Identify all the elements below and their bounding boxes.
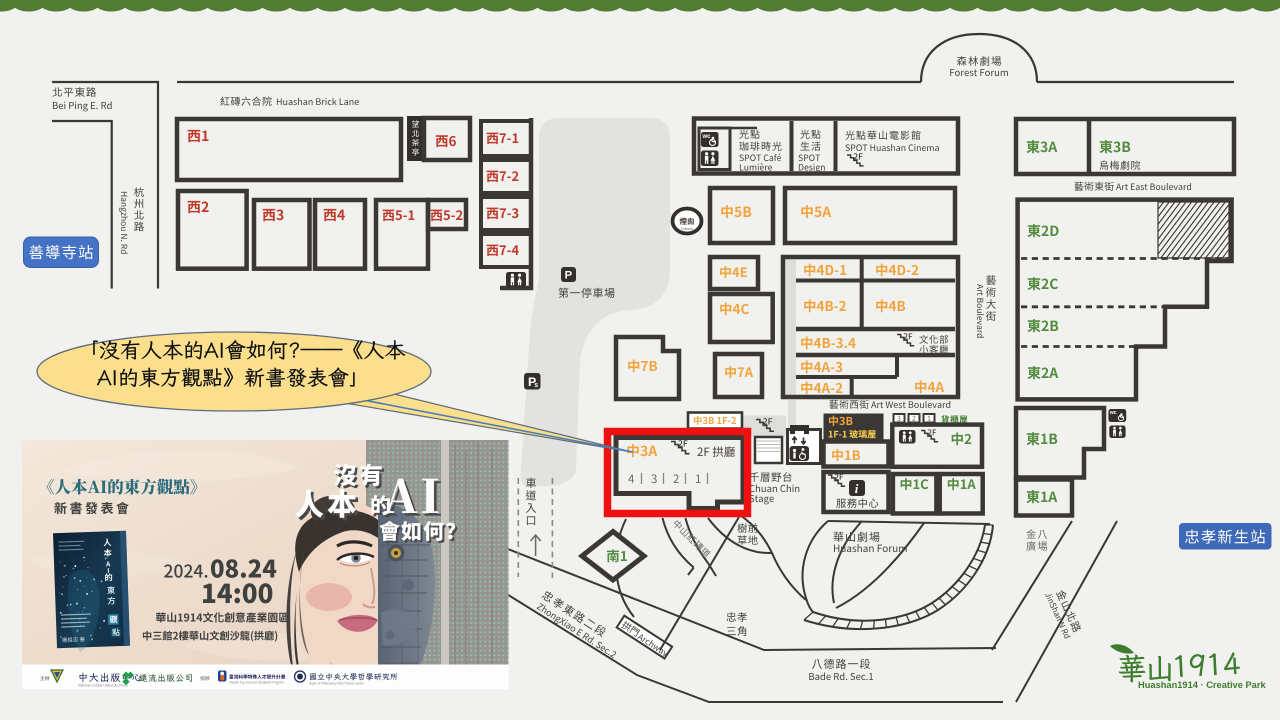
svg-text:i: i xyxy=(855,482,859,496)
svg-text:wc: wc xyxy=(702,134,712,140)
svg-text:Huashan1914 · Creative Park: Huashan1914 · Creative Park xyxy=(1138,680,1266,690)
svg-text:Chimney: Chimney xyxy=(681,227,694,231)
svg-text:National Central University Pr: National Central University Press xyxy=(78,684,128,688)
svg-text:Dept. of Philosophy NCU Press: Dept. of Philosophy NCU Press Center xyxy=(309,682,365,686)
svg-text:Taiwan Top Science Students Pr: Taiwan Top Science Students Program xyxy=(229,681,284,685)
svg-text:wc: wc xyxy=(1109,410,1117,416)
svg-text:s: s xyxy=(534,382,538,389)
svg-text:P: P xyxy=(565,270,573,282)
